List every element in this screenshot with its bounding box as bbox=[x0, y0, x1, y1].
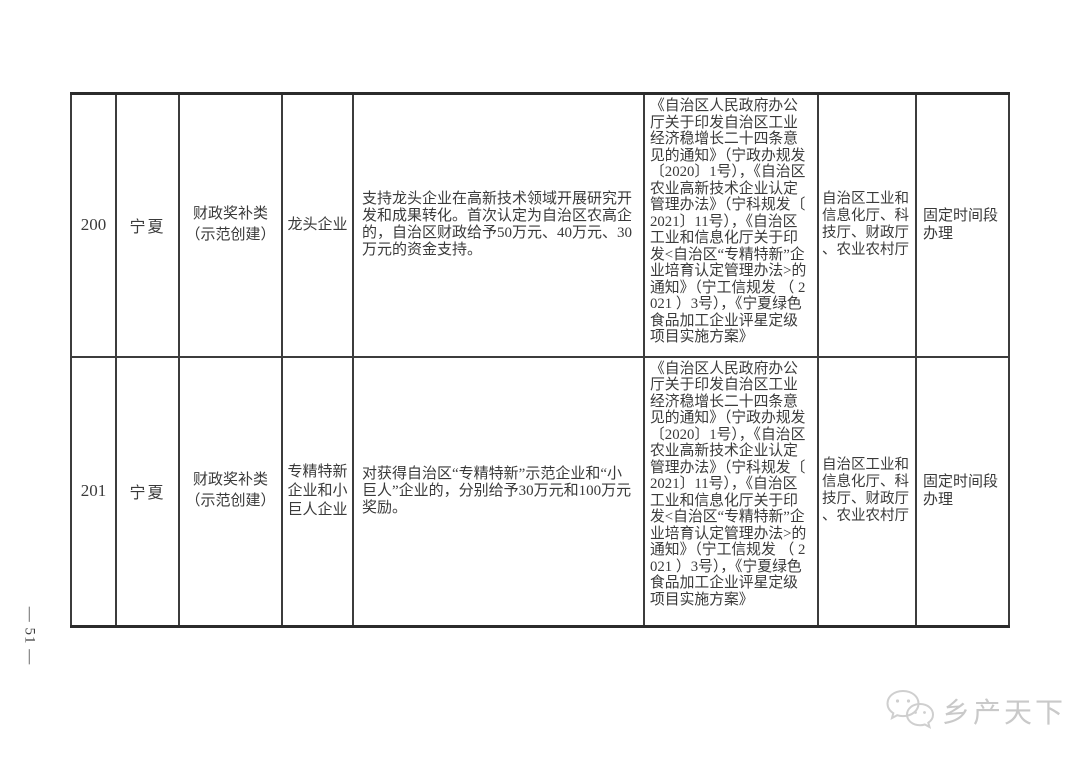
region-cell: 宁夏 bbox=[116, 94, 179, 357]
page-number: — 51 — bbox=[21, 607, 38, 666]
handling-time-cell: 固定时间段办理 bbox=[916, 94, 1009, 357]
description-cell: 对获得自治区“专精特新”示范企业和“小巨人”企业的，分别给予30万元和100万元… bbox=[353, 357, 644, 627]
enterprise-type-cell: 龙头企业 bbox=[282, 94, 353, 357]
row-number-cell: 200 bbox=[71, 94, 116, 357]
description-cell: 支持龙头企业在高新技术领域开展研究开发和成果转化。首次认定为自治区农高企的，自治… bbox=[353, 94, 644, 357]
table-row-201: 201 宁夏 财政奖补类 （示范创建） 专精特新企业和小巨人企业 对获得自治区“… bbox=[71, 357, 1009, 627]
enterprise-type-cell: 专精特新企业和小巨人企业 bbox=[282, 357, 353, 627]
departments-cell: 自治区工业和信息化厅、科技厅、财政厅、农业农村厅 bbox=[818, 94, 916, 357]
policy-table: 200 宁夏 财政奖补类 （示范创建） 龙头企业 支持龙头企业在高新技术领域开展… bbox=[70, 92, 1010, 628]
document-page: — 51 — 200 宁夏 财政奖补类 （示范创建） 龙头企业 支持龙头企业在高… bbox=[0, 0, 1080, 763]
table-row-200: 200 宁夏 财政奖补类 （示范创建） 龙头企业 支持龙头企业在高新技术领域开展… bbox=[71, 94, 1009, 357]
departments-cell: 自治区工业和信息化厅、科技厅、财政厅、农业农村厅 bbox=[818, 357, 916, 627]
wechat-bubbles-icon bbox=[884, 688, 936, 734]
row-number-cell: 201 bbox=[71, 357, 116, 627]
category-cell: 财政奖补类 （示范创建） bbox=[179, 94, 282, 357]
policy-basis-cell: 《自治区人民政府办公厅关于印发自治区工业经济稳增长二十四条意见的通知》（宁政办规… bbox=[644, 94, 818, 357]
watermark: 乡产天下 bbox=[884, 688, 1066, 734]
region-cell: 宁夏 bbox=[116, 357, 179, 627]
watermark-text: 乡产天下 bbox=[942, 691, 1066, 731]
handling-time-cell: 固定时间段办理 bbox=[916, 357, 1009, 627]
policy-basis-cell: 《自治区人民政府办公厅关于印发自治区工业经济稳增长二十四条意见的通知》（宁政办规… bbox=[644, 357, 818, 627]
category-cell: 财政奖补类 （示范创建） bbox=[179, 357, 282, 627]
